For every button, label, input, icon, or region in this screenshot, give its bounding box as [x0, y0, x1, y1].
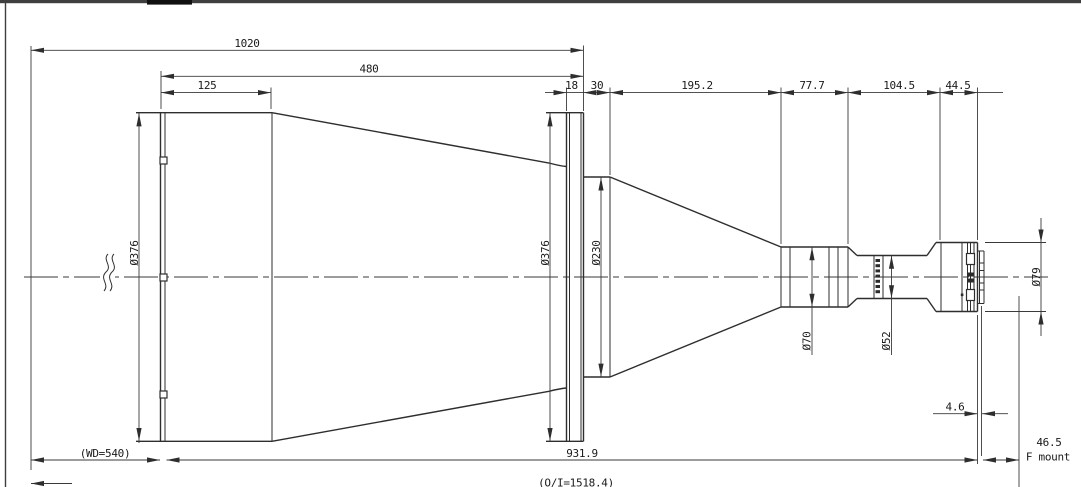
dim-1020-label: 1020 — [234, 37, 259, 50]
axis-break-symbol — [100, 254, 115, 291]
dim-4-6-label: 4.6 — [946, 401, 965, 414]
dia-70-label: Ø70 — [801, 332, 814, 351]
dim-oi-1518-4-label: (O/I=1518.4) — [538, 477, 614, 487]
dim-44-5-label: 44.5 — [945, 79, 970, 92]
f-mount-label: F mount — [1026, 451, 1070, 464]
dim-46-5-label: 46.5 — [1036, 436, 1061, 449]
lens-technical-drawing: 1020 480 125 18 30 195.2 77.7 104.5 44.5… — [0, 0, 1081, 487]
dia-230-label: Ø230 — [590, 240, 603, 265]
dia-376-flange-label: Ø376 — [539, 240, 552, 265]
dia-376-front-label: Ø376 — [128, 240, 141, 265]
aperture-scale-marks — [876, 259, 881, 293]
dia-79-label: Ø79 — [1030, 268, 1043, 287]
dim-104-5-label: 104.5 — [883, 79, 915, 92]
dim-931-9-label: 931.9 — [566, 447, 598, 460]
dim-125-label: 125 — [198, 79, 217, 92]
drawing-canvas: 1020 480 125 18 30 195.2 77.7 104.5 44.5… — [0, 0, 1081, 487]
dim-30-label: 30 — [591, 79, 604, 92]
dim-480-label: 480 — [360, 63, 379, 76]
dim-18-label: 18 — [565, 79, 578, 92]
dim-wd540-label: (WD=540) — [80, 447, 131, 460]
dim-77-7-label: 77.7 — [799, 79, 824, 92]
dia-52-label: Ø52 — [880, 332, 893, 351]
dimension-labels: 1020 480 125 18 30 195.2 77.7 104.5 44.5… — [80, 37, 1070, 487]
dim-195-2-label: 195.2 — [681, 79, 713, 92]
